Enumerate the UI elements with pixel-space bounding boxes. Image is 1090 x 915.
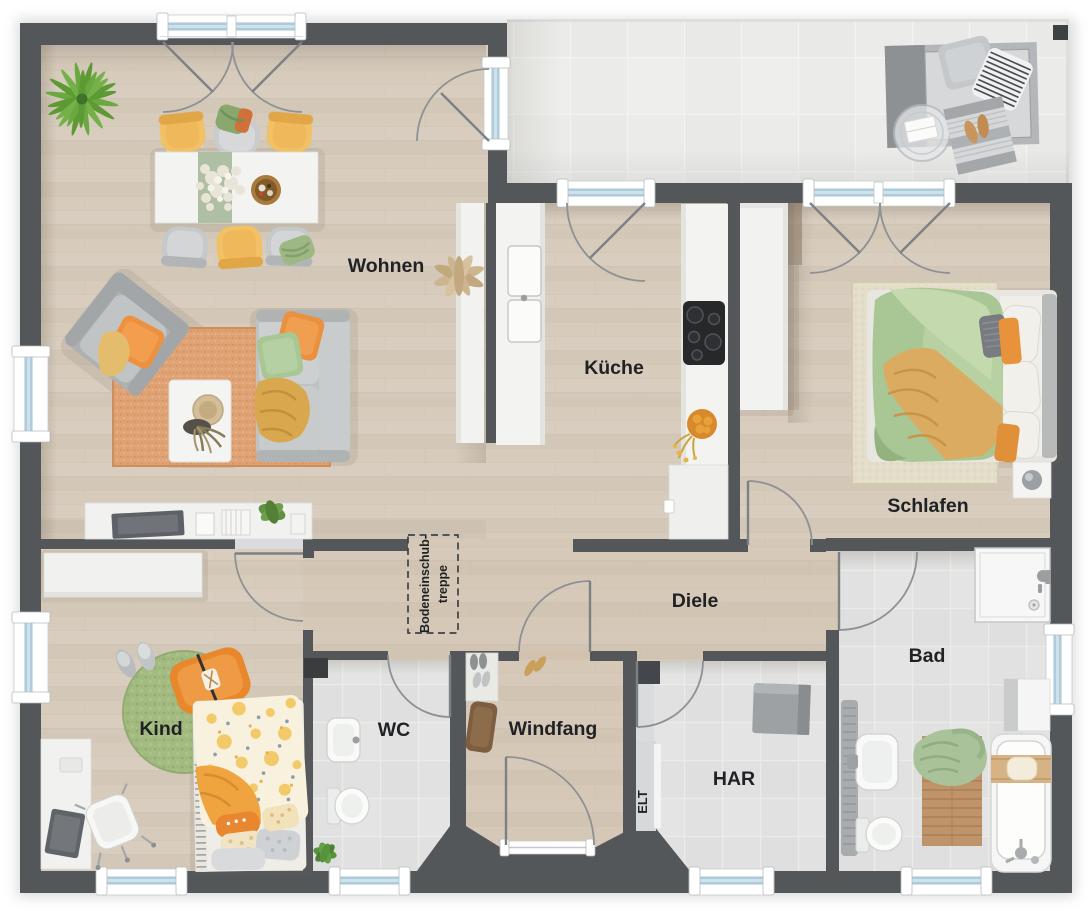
- svg-text:treppe: treppe: [436, 565, 450, 603]
- svg-text:WC: WC: [378, 719, 411, 741]
- svg-text:ELT: ELT: [635, 790, 650, 814]
- svg-text:Windfang: Windfang: [509, 718, 598, 740]
- svg-text:Küche: Küche: [584, 357, 644, 379]
- svg-text:Wohnen: Wohnen: [348, 255, 425, 277]
- svg-text:Kind: Kind: [139, 718, 182, 740]
- svg-text:Schlafen: Schlafen: [887, 495, 968, 517]
- svg-text:Bodeneinschub-: Bodeneinschub-: [418, 535, 432, 633]
- svg-text:HAR: HAR: [713, 768, 755, 790]
- svg-text:Bad: Bad: [909, 645, 946, 667]
- svg-text:Diele: Diele: [672, 590, 719, 612]
